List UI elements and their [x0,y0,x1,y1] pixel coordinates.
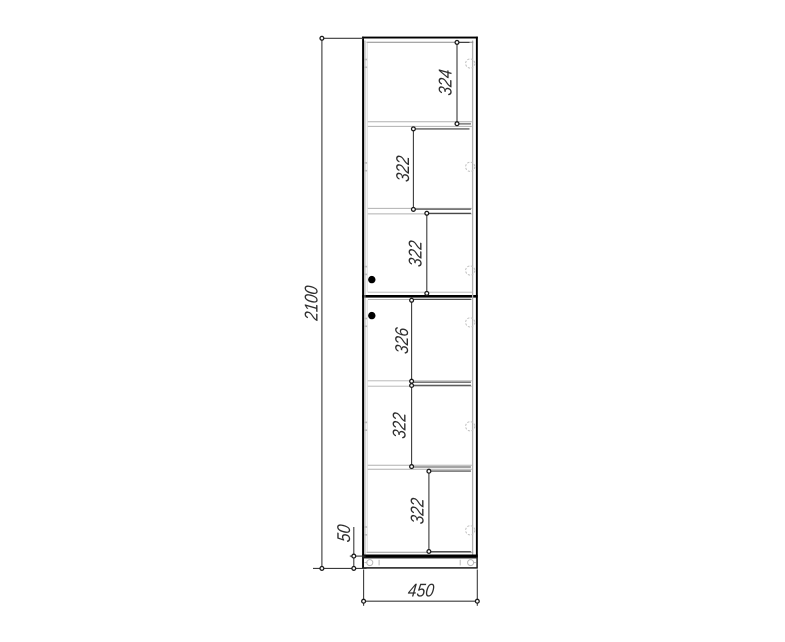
svg-text:322: 322 [406,496,428,525]
svg-text:326: 326 [391,326,413,355]
svg-text:50: 50 [333,523,355,543]
svg-text:322: 322 [392,154,414,183]
svg-text:324: 324 [434,68,456,96]
svg-text:2100: 2100 [300,284,322,322]
svg-text:322: 322 [404,239,426,268]
svg-text:450: 450 [407,579,436,601]
svg-text:322: 322 [388,411,410,440]
